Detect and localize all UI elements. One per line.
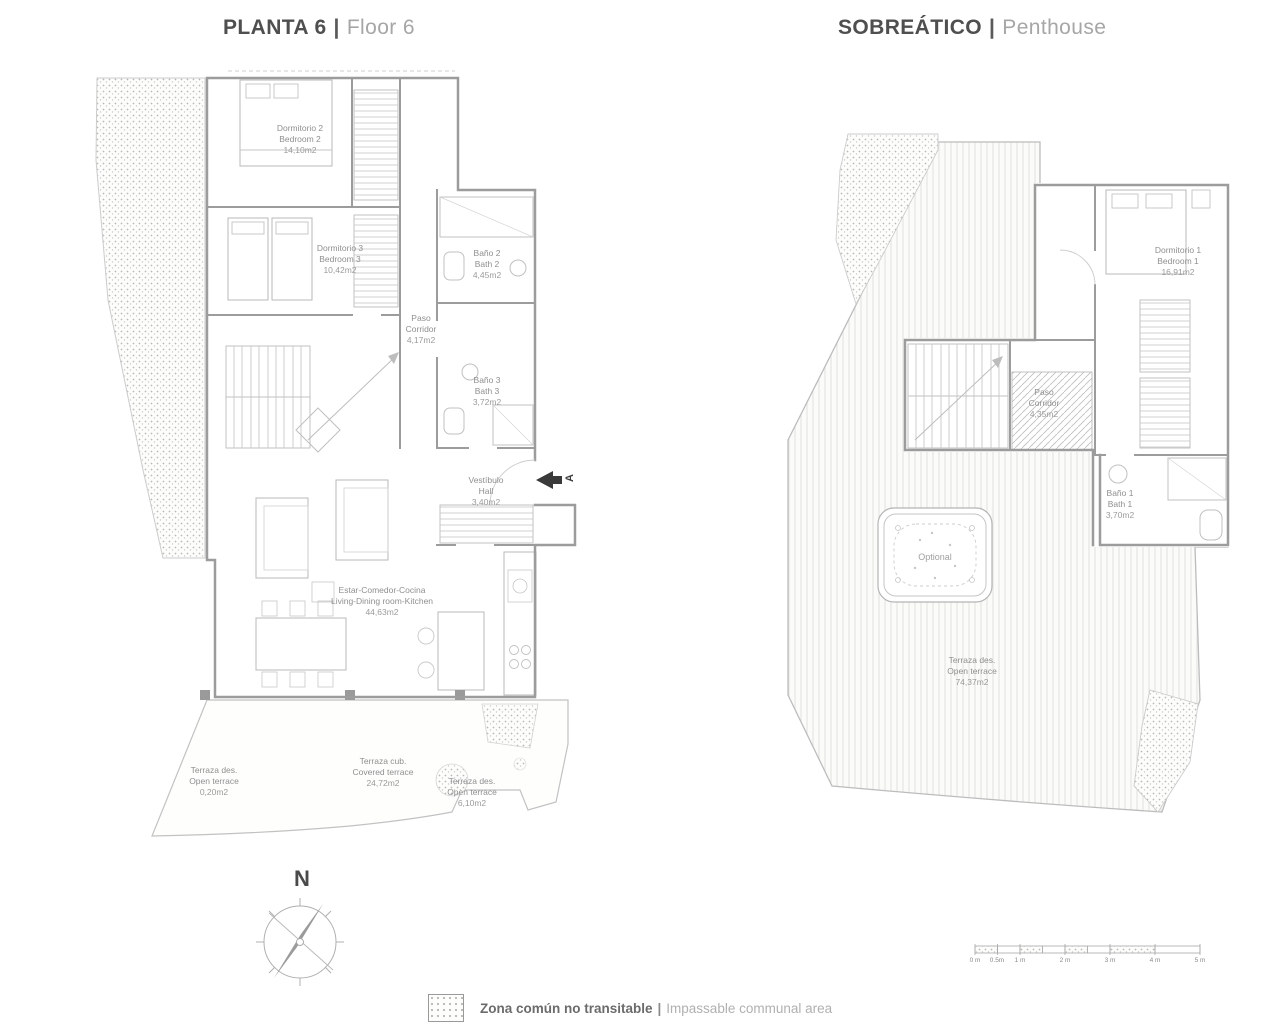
- scale-label-4: 4 m: [1150, 957, 1161, 964]
- room-label-living: Estar-Comedor-CocinaLiving-Dining room-K…: [331, 585, 433, 619]
- scale-label-2: 2 m: [1060, 957, 1071, 964]
- scale-label-5: 5 m: [1195, 957, 1206, 964]
- impassable-area-swatch-icon: [428, 994, 464, 1022]
- room-label-terrace-ph: Terraza des.Open terrace74,37m2: [947, 655, 997, 689]
- room-label-terrace-open-left: Terraza des.Open terrace0,20m2: [189, 765, 239, 799]
- room-label-bedroom3: Dormitorio 3Bedroom 310,42m2: [317, 243, 363, 277]
- plan6-title-separator: |: [334, 16, 340, 39]
- plan6-title: PLANTA 6|Floor 6: [223, 16, 415, 40]
- penthouse-stairs: [908, 344, 1008, 448]
- room-label-bath3: Baño 3Bath 33,72m2: [473, 375, 501, 409]
- penthouse-title: SOBREÁTICO|Penthouse: [838, 16, 1106, 40]
- room-label-corridor-ph: PasoCorridor4,35m2: [1029, 387, 1060, 421]
- room-label-bedroom1: Dormitorio 1Bedroom 116,91m2: [1155, 245, 1201, 279]
- legend-label-en: Impassable communal area: [666, 1001, 832, 1016]
- room-label-bath1: Baño 1Bath 13,70m2: [1106, 488, 1134, 522]
- entrance-marker-label: A: [564, 474, 576, 482]
- plan6-drawing: [96, 71, 575, 836]
- room-label-corridor-p6: PasoCorridor4,17m2: [406, 313, 437, 347]
- floorplans-drawing: [0, 0, 1280, 1024]
- legend-separator: |: [658, 1001, 662, 1016]
- legend: Zona común no transitable|Impassable com…: [428, 994, 832, 1022]
- scale-bar: [975, 944, 1200, 955]
- entrance-arrow-icon: [536, 471, 562, 489]
- hot-tub-label: Optional: [918, 552, 952, 562]
- room-label-bath2: Baño 2Bath 24,45m2: [473, 248, 501, 282]
- plan6-title-es: PLANTA 6: [223, 16, 327, 39]
- plan6-title-en: Floor 6: [347, 16, 415, 39]
- penthouse-title-separator: |: [989, 16, 995, 39]
- room-label-bedroom2: Dormitorio 2Bedroom 214,10m2: [277, 123, 323, 157]
- legend-text: Zona común no transitable|Impassable com…: [480, 1001, 832, 1016]
- room-label-hall: VestíbuloHall3,40m2: [469, 475, 504, 509]
- penthouse-drawing: [788, 134, 1230, 812]
- room-label-terrace-covered: Terraza cub.Covered terrace24,72m2: [353, 756, 414, 790]
- penthouse-title-es: SOBREÁTICO: [838, 16, 982, 39]
- penthouse-title-en: Penthouse: [1002, 16, 1106, 39]
- compass-north-label: N: [294, 866, 310, 892]
- compass-rose-icon: [256, 898, 344, 986]
- scale-label-1: 1 m: [1015, 957, 1026, 964]
- scale-label-3: 3 m: [1105, 957, 1116, 964]
- floorplan-sheet: PLANTA 6|Floor 6 SOBREÁTICO|Penthouse Do…: [0, 0, 1280, 1024]
- scale-label-0: 0 m: [970, 957, 981, 964]
- plan6-impassable-zone: [96, 78, 205, 558]
- scale-label-05: 0.5m: [990, 957, 1004, 964]
- room-label-terrace-open-right: Terraza des.Open terrace6,10m2: [447, 776, 497, 810]
- legend-label-es: Zona común no transitable: [480, 1001, 653, 1016]
